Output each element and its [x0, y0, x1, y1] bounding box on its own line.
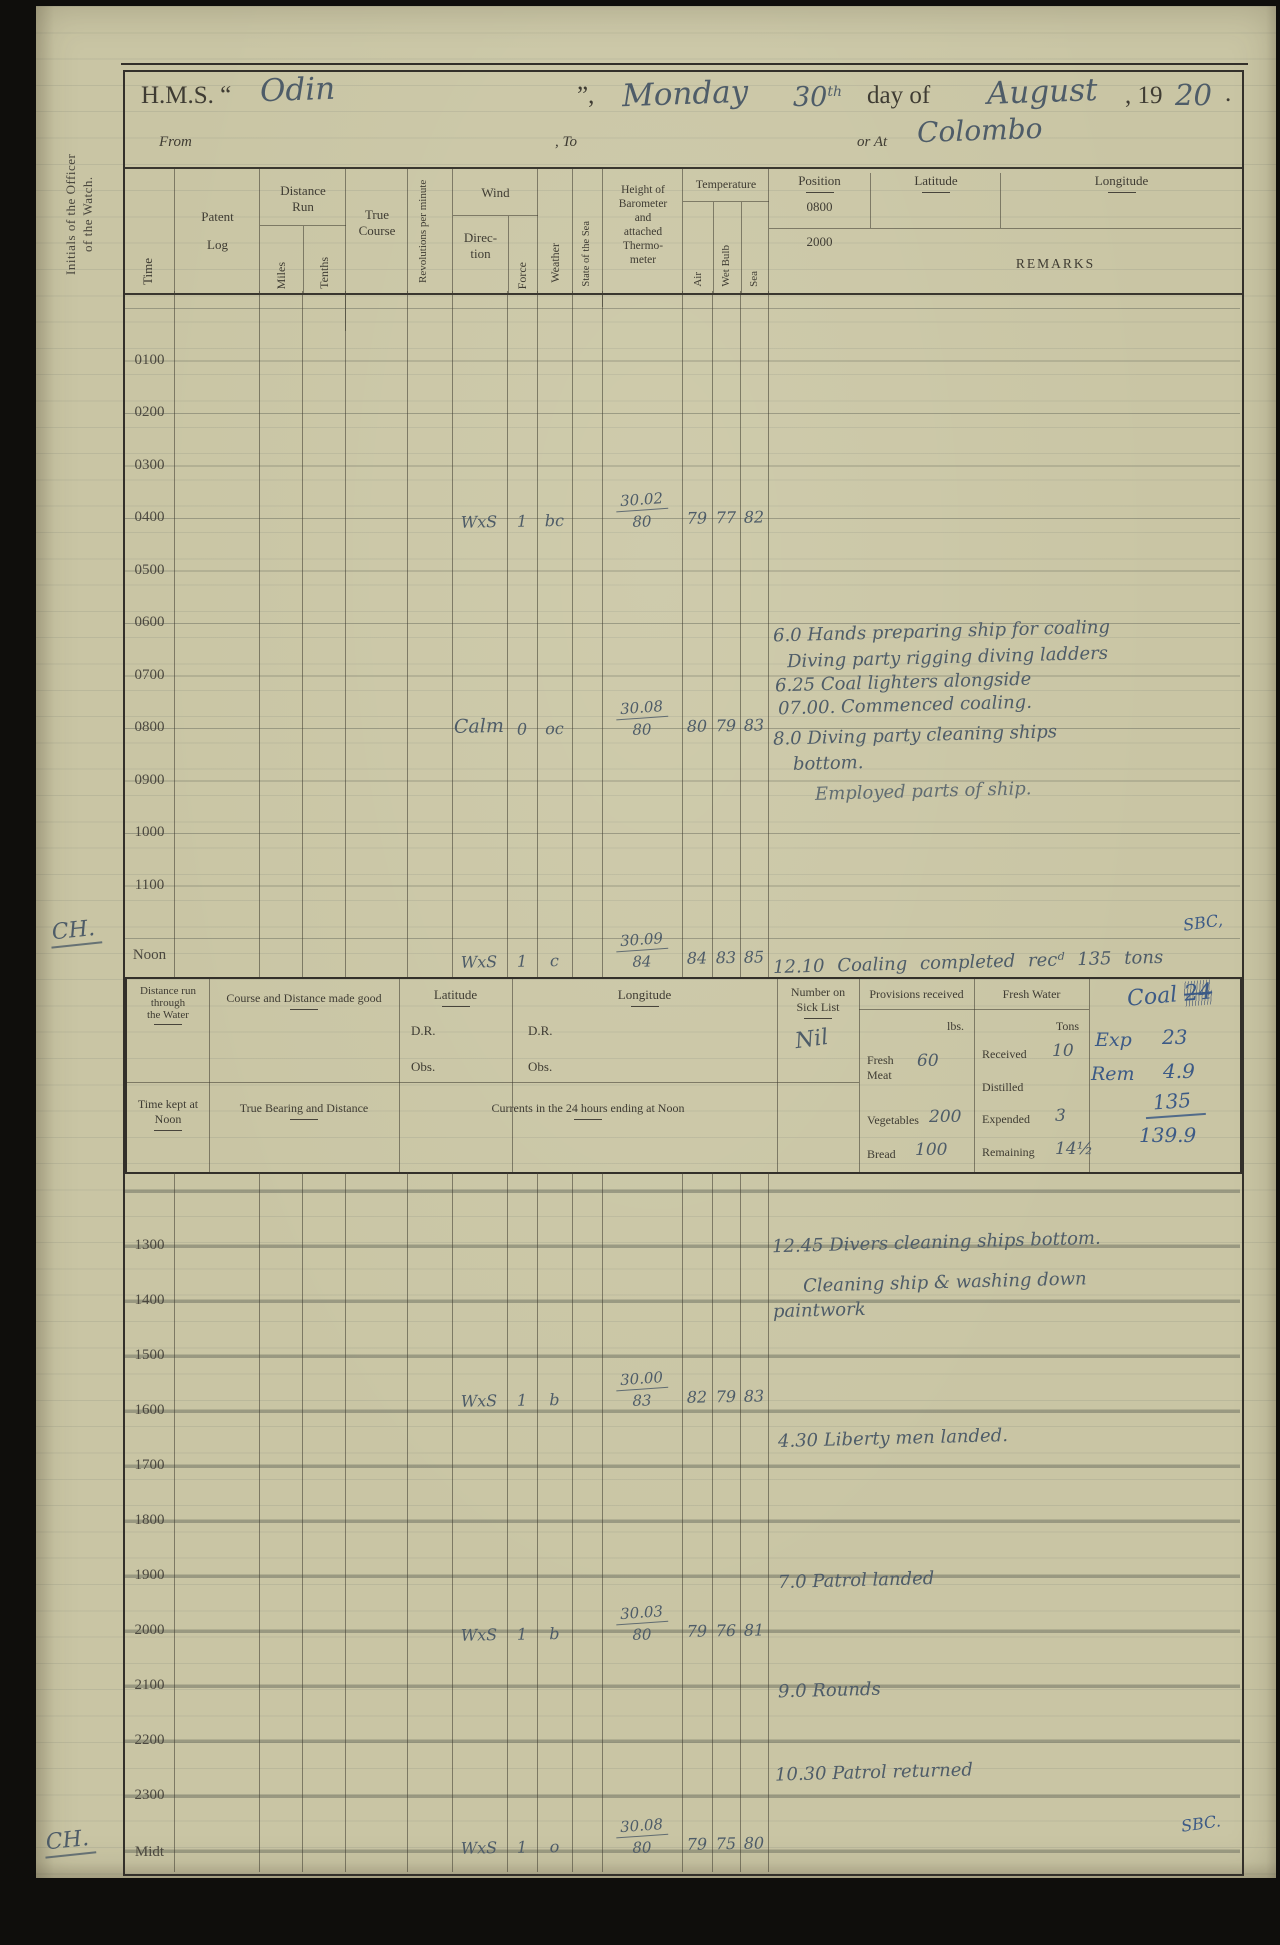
time-row-label: 0300 [126, 457, 173, 474]
received-value: 10 [1052, 1041, 1074, 1061]
coal-expended-value: 23 [1162, 1025, 1187, 1049]
log-label: Log [175, 237, 260, 253]
remark-entry: Diving party rigging diving ladders [787, 643, 1108, 672]
weather-entry: b [537, 1624, 572, 1644]
attached-thermometer: 80 [602, 1836, 682, 1857]
time-row-label: 0700 [126, 667, 173, 684]
coal-remaining-label: Rem [1091, 1063, 1135, 1085]
distance-water-label: Distance run through the Water [127, 985, 209, 1025]
direction-label: Direc- tion [453, 230, 508, 262]
remarks-label: REMARKS [870, 256, 1241, 272]
observation-0400: WxS 1 bc 30.0280 79 77 82 [125, 490, 769, 559]
column-line [713, 202, 714, 293]
day-ordinal: th [827, 84, 842, 100]
time-row-label: 1900 [126, 1567, 173, 1584]
wet-bulb-entry: 75 [712, 1834, 740, 1853]
fresh-water-label: Fresh Water [974, 987, 1089, 1002]
barometer-entry: 30.0083 [601, 1369, 682, 1410]
remark-entry: paintwork [773, 1299, 866, 1322]
coal-total-value: 139.9 [1139, 1123, 1196, 1147]
hms-prefix: H.M.S. “ [141, 82, 231, 110]
sea-temp-entry: 81 [740, 1620, 768, 1639]
wet-bulb-entry: 77 [712, 508, 740, 527]
margin-initials-label: Initials of the Officer of the Watch. [62, 114, 102, 314]
remark-entry: 7.0 Patrol landed [778, 1568, 935, 1593]
barometer-entry: 30.0880 [601, 698, 682, 739]
patent-label: Patent [175, 209, 260, 225]
remark-entry: 8.0 Diving party cleaning ships [773, 721, 1057, 749]
year-period: . [1225, 80, 1231, 108]
column-line [741, 202, 742, 293]
coal-received-value: 135 [1144, 1087, 1206, 1119]
coal-expended-label: Exp [1095, 1029, 1132, 1051]
latitude-header: Latitude [870, 173, 1001, 228]
remark-entry: 9.0 Rounds [778, 1679, 881, 1703]
ship-name: Odin [259, 71, 335, 110]
underline-rule [290, 1009, 318, 1010]
col-header-barometer: Height of Barometer and attached Thermo-… [602, 169, 683, 307]
observation-1600: WxS 1 b 30.0083 82 79 83 [125, 1369, 769, 1438]
col-header-temperature: Temperature Air Wet Bulb Sea [682, 169, 769, 293]
sea-temp-entry: 83 [740, 715, 768, 734]
wind-force-entry: 1 [507, 1624, 537, 1644]
wet-bulb-entry: 76 [712, 1621, 740, 1640]
barometer-height: 30.08 [615, 697, 668, 721]
underline-rule [631, 1006, 659, 1007]
time-kept-label: Time kept at Noon [127, 1097, 209, 1131]
longitude-obs-label: Obs. [512, 1059, 578, 1075]
title-close-quote: ”, [577, 82, 594, 110]
row-line [974, 1009, 1089, 1010]
time-label: Time [140, 258, 156, 285]
remark-entry: 6.0 Hands preparing ship for coaling [773, 617, 1110, 647]
coal-title: Coal 24 [1126, 979, 1213, 1011]
time-row-label: 1100 [126, 877, 173, 894]
location-name: Colombo [916, 112, 1043, 149]
row-line [859, 1009, 974, 1010]
position-label: Position [769, 173, 870, 189]
air-temp-entry: 82 [682, 1387, 712, 1407]
time-row-label: 2100 [126, 1677, 173, 1694]
col-header-state-sea: State of the Sea [572, 169, 603, 293]
column-line [512, 979, 513, 1172]
position-header: Position 0800 [769, 173, 870, 215]
noon-summary-box: Distance run through the Water Course an… [125, 977, 1242, 1174]
received-label: Received [982, 1047, 1037, 1062]
attached-thermometer: 83 [602, 1389, 682, 1410]
table-header: Time Patent Log Distance Run Miles Tenth… [125, 167, 1242, 295]
expended-label: Expended [982, 1112, 1040, 1127]
column-line [399, 979, 400, 1172]
vegetables-value: 200 [929, 1107, 961, 1127]
latitude-dr-label: D.R. [399, 1023, 451, 1039]
wind-subcols: Direc- tion Force [453, 215, 538, 293]
column-line [303, 226, 304, 293]
longitude-label: Longitude [1001, 173, 1242, 189]
remark-entry: Cleaning ship & washing down [803, 1268, 1087, 1296]
sick-list-label: Number on Sick List [777, 985, 859, 1019]
bread-label: Bread [867, 1147, 907, 1162]
currents-label: Currents in the 24 hours ending at Noon [399, 1101, 777, 1120]
underline-rule [806, 192, 834, 193]
time-row-label: 1700 [126, 1457, 173, 1474]
wet-bulb-entry: 79 [712, 716, 740, 735]
remark-entry: 10.30 Patrol returned [775, 1759, 973, 1785]
remarks-header-row: 2000 REMARKS [769, 228, 1241, 293]
barometer-height: 30.03 [615, 1602, 668, 1626]
scanned-log-page: Initials of the Officer of the Watch. CH… [0, 0, 1280, 1945]
watch-officer-signature: SBC, [1182, 910, 1224, 934]
wind-force-entry: 1 [507, 511, 537, 531]
col-header-wind: Wind Direc- tion Force [452, 169, 538, 293]
year-printed: , 19 [1125, 82, 1163, 110]
wind-direction-entry: WxS [450, 1391, 508, 1411]
time-row-label: 0100 [126, 352, 173, 369]
course-made-good-label: Course and Distance made good [209, 991, 399, 1010]
remark-entry: 12.45 Divers cleaning ships bottom. [772, 1228, 1101, 1258]
wind-direction-entry: Calm [450, 715, 508, 738]
expended-value: 3 [1055, 1106, 1066, 1126]
underline-rule [1108, 192, 1136, 193]
weather-entry: bc [537, 511, 572, 531]
miles-label: Miles [274, 262, 289, 289]
col-header-right-block: Position 0800 Latitude Longitude 2000 [768, 169, 1241, 293]
remark-entry: 07.00. Commenced coaling. [778, 692, 1032, 720]
weather-label: Weather [548, 243, 563, 283]
state-of-sea-label: State of the Sea [581, 221, 592, 287]
distance-run-label: Distance Run [260, 169, 346, 219]
underline-rule [574, 1119, 602, 1120]
wet-bulb-entry: 83 [712, 948, 740, 967]
force-label: Force [515, 262, 530, 289]
day-name: Monday [621, 74, 748, 114]
remark-entry: 12.10 Coaling completed recᵈ 135 tons [773, 945, 1235, 978]
row-line [127, 1082, 859, 1083]
time-row-label: 0500 [126, 562, 173, 579]
coal-remaining-value: 4.9 [1163, 1059, 1195, 1083]
wind-force-entry: 1 [507, 951, 537, 971]
barometer-entry: 30.0880 [601, 1816, 682, 1857]
day-number: 30th [793, 82, 842, 113]
fresh-meat-value: 60 [917, 1051, 939, 1071]
barometer-height: 30.08 [615, 1815, 668, 1839]
time-row-label: 0200 [126, 404, 173, 421]
observation-0800: Calm 0 oc 30.0880 80 79 83 [125, 698, 769, 767]
position-2000-label: 2000 [769, 234, 870, 250]
distilled-label: Distilled [982, 1080, 1037, 1095]
from-label: From [159, 134, 192, 151]
position-lat-long-row: Position 0800 Latitude Longitude [769, 169, 1241, 229]
air-temp-entry: 84 [682, 948, 712, 968]
underline-rule [154, 1130, 182, 1131]
temperature-label: Temperature [683, 169, 769, 195]
day-of-text: day of [867, 82, 930, 110]
coal-crossed-out-scribble: 24 [1183, 979, 1213, 1006]
col-header-time: Time [125, 169, 174, 293]
month-name: August [986, 72, 1098, 112]
fresh-meat-label: Fresh Meat [867, 1053, 907, 1083]
time-row-label: 2200 [126, 1732, 173, 1749]
air-temp-entry: 79 [682, 508, 712, 528]
wind-label: Wind [453, 169, 538, 207]
air-temp-entry: 79 [682, 1621, 712, 1641]
time-row-label: 0600 [126, 614, 173, 631]
time-row-label: 1400 [126, 1292, 173, 1309]
true-bearing-label: True Bearing and Distance [209, 1101, 399, 1120]
log-form: H.M.S. “ Odin ”, Monday 30th day of Augu… [123, 70, 1244, 1876]
weather-entry: b [537, 1390, 572, 1410]
barometer-entry: 30.0984 [601, 930, 682, 971]
weather-entry: oc [537, 719, 572, 739]
column-line [508, 216, 509, 293]
weather-entry: o [537, 1837, 572, 1857]
underline-rule [922, 192, 950, 193]
position-0800-label: 0800 [769, 199, 870, 215]
sea-temp-entry: 82 [740, 507, 768, 526]
tenths-label: Tenths [317, 257, 332, 289]
officer-initials-midnight: CH. [43, 1825, 97, 1858]
underline-rule [290, 1119, 318, 1120]
wind-force-entry: 1 [507, 1390, 537, 1410]
air-temp-entry: 79 [682, 1834, 712, 1854]
remaining-label: Remaining [982, 1145, 1044, 1160]
col-header-distance-run: Distance Run Miles Tenths [259, 169, 346, 293]
observation-2000: WxS 1 b 30.0380 79 76 81 [125, 1603, 769, 1672]
sea-temp-entry: 80 [740, 1833, 768, 1852]
log-body-am: 0100 0200 0300 0400 0500 0600 0700 0800 … [125, 291, 1240, 979]
weather-entry: c [537, 951, 572, 971]
observation-midnight: WxS 1 o 30.0880 79 75 80 [125, 1816, 769, 1885]
attached-thermometer: 80 [602, 510, 682, 531]
remark-entry: Employed parts of ship. [815, 778, 1032, 805]
barometer-entry: 30.0380 [601, 1603, 682, 1644]
column-line [974, 979, 975, 1172]
latitude-label: Latitude [871, 173, 1001, 189]
distance-run-subcols: Miles Tenths [260, 225, 346, 293]
to-label: , To [555, 134, 577, 151]
provisions-label: Provisions received [859, 987, 974, 1002]
wind-force-entry: 1 [507, 1837, 537, 1857]
remaining-value: 14½ [1055, 1139, 1093, 1159]
log-paper: Initials of the Officer of the Watch. CH… [36, 6, 1276, 1878]
barometer-height: 30.02 [615, 489, 668, 513]
wind-direction-entry: WxS [450, 1838, 508, 1858]
barometer-height: 30.00 [615, 1368, 668, 1392]
wet-bulb-label: Wet Bulb [720, 245, 732, 287]
tons-label: Tons [974, 1019, 1079, 1034]
log-body-pm: 1300 1400 1500 1600 1700 1800 1900 2000 … [125, 1172, 1240, 1872]
vegetables-label: Vegetables [867, 1113, 927, 1128]
wind-direction-entry: WxS [450, 1625, 508, 1645]
wind-force-entry: 0 [507, 719, 537, 739]
time-row-label: 1500 [126, 1347, 173, 1364]
longitude-dr-label: D.R. [512, 1023, 578, 1039]
watch-officer-signature: SBC. [1180, 1811, 1222, 1835]
officer-initials-noon: CH. [49, 915, 103, 948]
remark-entry: 4.30 Liberty men landed. [778, 1425, 1008, 1452]
wind-direction-entry: WxS [450, 512, 508, 532]
attached-thermometer: 84 [602, 950, 682, 971]
sick-list-value: Nil [793, 1025, 829, 1054]
col-header-weather: Weather [537, 169, 573, 293]
year-handwritten: 20 [1175, 78, 1212, 112]
remark-entry: bottom. [793, 752, 864, 775]
revolutions-label: Revolutions per minute [416, 179, 430, 283]
time-row-label: 0900 [126, 772, 173, 789]
barometer-height: 30.09 [615, 929, 668, 953]
longitude-header: Longitude [1000, 173, 1242, 228]
bread-value: 100 [915, 1140, 947, 1160]
temperature-subcols: Air Wet Bulb Sea [683, 201, 769, 293]
sea-temp-entry: 83 [740, 1386, 768, 1405]
air-label: Air [692, 272, 704, 287]
latitude-obs-label: Obs. [399, 1059, 451, 1075]
time-row-label: 2300 [126, 1787, 173, 1804]
time-row-label: 1800 [126, 1512, 173, 1529]
sea-temp-entry: 85 [740, 947, 768, 966]
wet-bulb-entry: 79 [712, 1387, 740, 1406]
time-row-label: 1300 [126, 1237, 173, 1254]
barometer-entry: 30.0280 [601, 490, 682, 531]
or-at-label: or At [857, 134, 887, 151]
sea-label: Sea [748, 271, 760, 287]
time-row-label: 1000 [126, 824, 173, 841]
col-header-revolutions: Revolutions per minute [407, 169, 453, 293]
attached-thermometer: 80 [602, 718, 682, 739]
lbs-label: lbs. [859, 1019, 964, 1034]
air-temp-entry: 80 [682, 716, 712, 736]
underline-rule [442, 1006, 470, 1007]
column-line [859, 979, 860, 1172]
latitude-summary-label: Latitude [399, 987, 512, 1007]
col-header-patent-log: Patent Log [174, 169, 260, 293]
attached-thermometer: 80 [602, 1623, 682, 1644]
longitude-summary-label: Longitude [512, 987, 777, 1007]
underline-rule [804, 1018, 832, 1019]
wind-direction-entry: WxS [450, 952, 508, 972]
underline-rule [154, 1024, 182, 1025]
